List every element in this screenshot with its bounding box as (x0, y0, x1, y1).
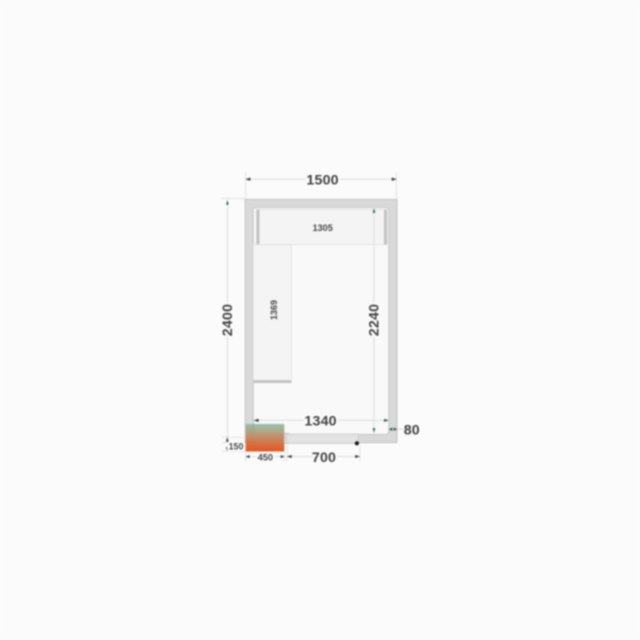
svg-text:700: 700 (312, 450, 336, 466)
svg-text:80: 80 (404, 422, 420, 438)
svg-text:2400: 2400 (220, 304, 236, 336)
svg-text:1305: 1305 (313, 223, 333, 233)
svg-text:2240: 2240 (366, 304, 382, 336)
svg-text:1340: 1340 (304, 414, 336, 430)
svg-text:1369: 1369 (269, 300, 279, 320)
svg-text:1500: 1500 (306, 172, 338, 188)
svg-text:150: 150 (229, 441, 244, 451)
svg-text:450: 450 (258, 453, 273, 463)
